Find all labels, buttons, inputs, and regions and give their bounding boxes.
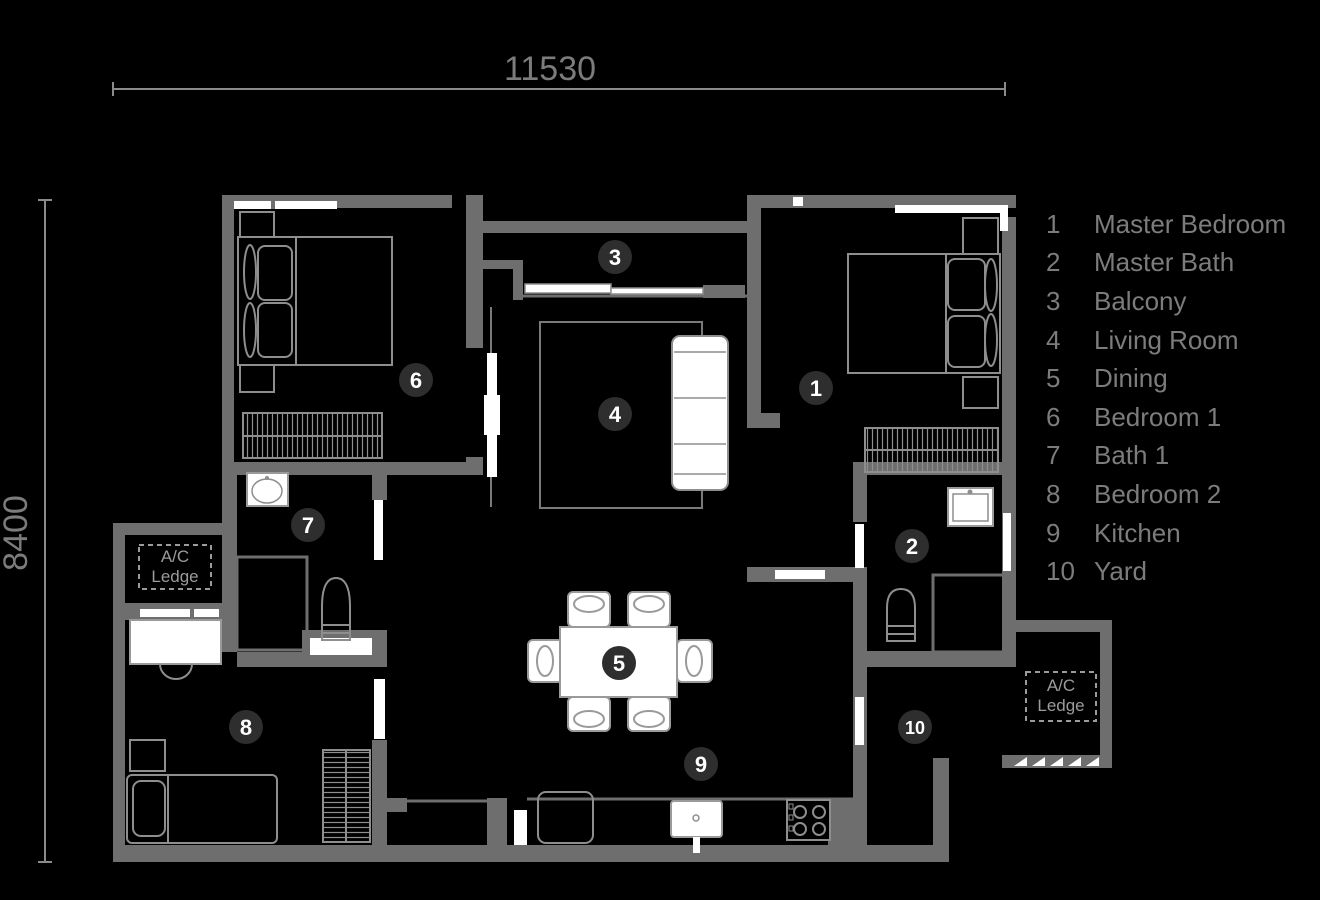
yard-door [855, 697, 864, 745]
master-bedroom-window [895, 205, 1002, 213]
room-marker-9: 9 [684, 747, 718, 781]
master-bedroom-door [775, 570, 825, 579]
master-bedroom-furniture [848, 218, 1000, 472]
room-marker-10: 10 [898, 710, 932, 744]
master-bath-shower [933, 575, 1005, 652]
room-marker-5: 5 [602, 646, 636, 680]
legend-label: Bedroom 2 [1094, 479, 1221, 510]
balcony-sliding-door [525, 284, 611, 293]
tv-icon [484, 395, 500, 435]
legend-number: 2 [1046, 247, 1094, 278]
room-marker-4: 4 [598, 397, 632, 431]
legend-label: Dining [1094, 363, 1168, 394]
legend-number: 8 [1046, 479, 1094, 510]
room-marker-8: 8 [229, 710, 263, 744]
master-bed-pillow [948, 259, 985, 310]
ac-ledge-label: Ledge [1037, 696, 1084, 715]
svg-text:10: 10 [905, 718, 925, 738]
ac-ledge-label: A/C [161, 547, 189, 566]
svg-text:1: 1 [810, 376, 822, 401]
bedroom1-nightstand [240, 365, 274, 392]
bath1-fixtures [237, 473, 350, 650]
room-marker-2: 2 [895, 529, 929, 563]
room-marker-3: 3 [598, 240, 632, 274]
dimension-height-label: 8400 [0, 495, 35, 571]
master-bed-pillow [948, 316, 985, 367]
legend-row: 8Bedroom 2 [1046, 475, 1286, 514]
legend-number: 10 [1046, 556, 1094, 587]
bedroom2-pillow [133, 781, 165, 836]
legend-label: Bedroom 1 [1094, 402, 1221, 433]
bath1-door [374, 500, 383, 560]
bedroom2-door [374, 679, 385, 739]
master-bath-door [855, 524, 864, 568]
legend-row: 9Kitchen [1046, 514, 1286, 553]
living-room-sofa [672, 336, 728, 490]
bath1-sink [247, 473, 288, 506]
ac-ledge-right: A/C Ledge [1026, 672, 1096, 721]
legend-number: 4 [1046, 325, 1094, 356]
legend-label: Yard [1094, 556, 1147, 587]
legend-row: 6Bedroom 1 [1046, 398, 1286, 437]
bedroom2-desk [130, 620, 221, 664]
room-marker-7: 7 [291, 508, 325, 542]
legend-label: Bath 1 [1094, 440, 1169, 471]
legend-label: Living Room [1094, 325, 1239, 356]
legend-row: 7Bath 1 [1046, 437, 1286, 476]
svg-text:7: 7 [302, 513, 314, 538]
kitchen-fixtures [538, 792, 830, 853]
master-bath-sink [948, 488, 993, 526]
legend-row: 2Master Bath [1046, 244, 1286, 283]
master-nightstand [963, 218, 998, 254]
svg-text:8: 8 [240, 715, 252, 740]
legend-number: 9 [1046, 518, 1094, 549]
stove-hob [787, 800, 830, 840]
legend-row: 5Dining [1046, 359, 1286, 398]
svg-text:4: 4 [609, 402, 622, 427]
dining-chair [628, 697, 670, 731]
legend-label: Kitchen [1094, 518, 1181, 549]
svg-text:2: 2 [906, 534, 918, 559]
svg-text:3: 3 [609, 245, 621, 270]
legend-number: 3 [1046, 286, 1094, 317]
master-bath-toilet [887, 589, 915, 641]
bedroom1-pillow [258, 246, 292, 300]
legend-number: 6 [1046, 402, 1094, 433]
legend-row: 1Master Bedroom [1046, 205, 1286, 244]
master-bath-fixtures [887, 488, 1005, 652]
floor-plan-page: A/C Ledge A/C Ledge 1 2 3 4 5 6 7 8 9 10… [0, 0, 1320, 900]
legend-label: Master Bedroom [1094, 209, 1286, 240]
bedroom2-nightstand [130, 740, 165, 771]
svg-text:9: 9 [695, 752, 707, 777]
legend-number: 5 [1046, 363, 1094, 394]
dimension-top: 11530 [113, 50, 1005, 96]
bedroom1-nightstand [240, 212, 274, 237]
legend-label: Balcony [1094, 286, 1187, 317]
room-marker-6: 6 [399, 363, 433, 397]
dimension-width-label: 11530 [504, 50, 596, 88]
bedroom1-furniture [238, 212, 392, 458]
legend-number: 1 [1046, 209, 1094, 240]
legend-row: 4Living Room [1046, 321, 1286, 360]
legend: 1Master Bedroom 2Master Bath 3Balcony 4L… [1046, 205, 1286, 591]
svg-text:5: 5 [613, 651, 625, 676]
ac-ledge-left-vent [194, 609, 219, 617]
master-bedroom-corner-window [1000, 205, 1008, 231]
dimension-left: 8400 [0, 200, 52, 862]
ac-ledge-label: Ledge [151, 567, 198, 586]
room-marker-1: 1 [799, 371, 833, 405]
master-nightstand [963, 377, 998, 408]
balcony-sliding-door [611, 288, 703, 294]
dining-chair [568, 697, 610, 731]
ac-ledge-left: A/C Ledge [139, 545, 211, 589]
bedroom2-chair [160, 664, 192, 679]
svg-text:6: 6 [410, 368, 422, 393]
dining-chair [568, 592, 610, 627]
dining-chair [628, 592, 670, 627]
bedroom1-pillow [258, 303, 292, 357]
ac-ledge-left-vent [140, 609, 190, 617]
legend-row: 10Yard [1046, 552, 1286, 591]
bedroom1-window [234, 201, 337, 209]
bath1-shower [237, 557, 307, 650]
master-bath-screen [1003, 513, 1011, 571]
legend-label: Master Bath [1094, 247, 1234, 278]
legend-number: 7 [1046, 440, 1094, 471]
entrance-door [514, 810, 527, 845]
ac-ledge-label: A/C [1047, 676, 1075, 695]
legend-row: 3Balcony [1046, 282, 1286, 321]
